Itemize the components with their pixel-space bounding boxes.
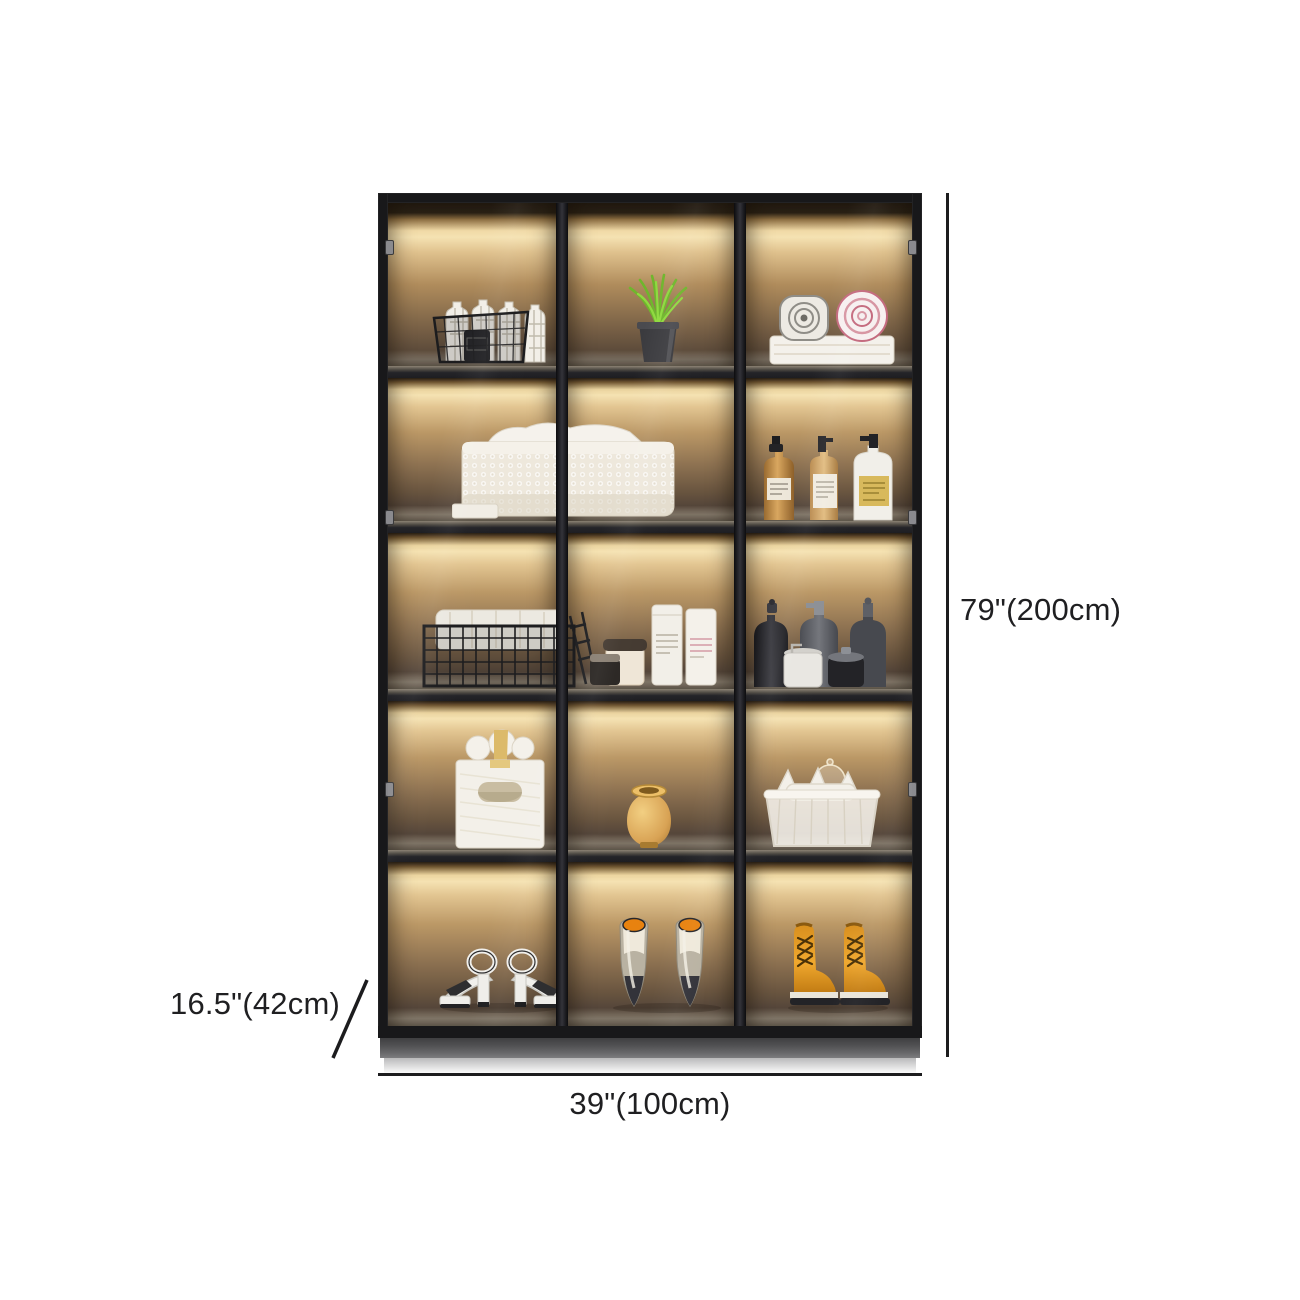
- product-dimension-image: 79"(200cm) 39"(100cm) 16.5"(42cm): [0, 0, 1300, 1300]
- hinge-icon: [385, 240, 394, 255]
- item-amber-pump-bottles: [752, 430, 902, 521]
- item-dark-dispenser-bottles: [748, 597, 898, 689]
- item-grid-basket-linens: [420, 604, 598, 689]
- item-storage-basket: [756, 756, 888, 850]
- item-gift-box: [450, 726, 550, 850]
- floor-shadow: [384, 1058, 916, 1074]
- frame-top: [378, 193, 922, 203]
- item-rolled-towels: [766, 288, 898, 366]
- shelf-4: [388, 850, 912, 862]
- item-jars-canisters: [588, 597, 740, 689]
- hinge-icon: [908, 782, 917, 797]
- item-wire-basket-bottles: [430, 292, 562, 366]
- height-dimension-label: 79"(200cm): [960, 592, 1121, 628]
- frame-right: [912, 193, 922, 1038]
- door-divider-right: [734, 203, 746, 1026]
- width-dimension-label: 39"(100cm): [378, 1086, 922, 1122]
- shelf-2: [388, 521, 912, 533]
- shelf-3: [388, 689, 912, 701]
- shelf-1: [388, 366, 912, 378]
- item-gold-vase: [618, 778, 680, 850]
- item-amber-boots: [784, 914, 892, 1014]
- depth-dimension-label: 16.5"(42cm): [140, 986, 340, 1022]
- hinge-icon: [385, 510, 394, 525]
- item-potted-grass-plant: [612, 270, 704, 366]
- item-white-heels: [436, 928, 568, 1014]
- hinge-icon: [908, 510, 917, 525]
- hinge-icon: [908, 240, 917, 255]
- item-woven-basket-towels: [452, 416, 684, 521]
- item-orange-pumps: [606, 910, 728, 1014]
- hinge-icon: [385, 782, 394, 797]
- frame-left: [378, 193, 388, 1038]
- cabinet-base: [380, 1038, 920, 1058]
- frame-bottom: [378, 1026, 922, 1038]
- door-divider-left: [556, 203, 568, 1026]
